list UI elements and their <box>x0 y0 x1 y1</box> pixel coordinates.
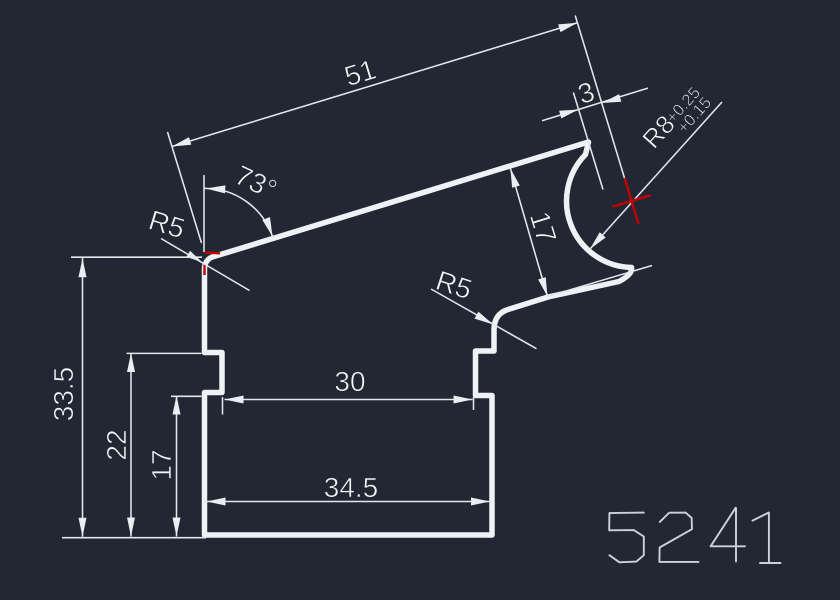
svg-text:22: 22 <box>101 429 132 460</box>
svg-text:30: 30 <box>334 366 365 397</box>
svg-text:33.5: 33.5 <box>48 367 79 422</box>
svg-text:34.5: 34.5 <box>324 472 379 503</box>
svg-text:17: 17 <box>146 449 177 480</box>
